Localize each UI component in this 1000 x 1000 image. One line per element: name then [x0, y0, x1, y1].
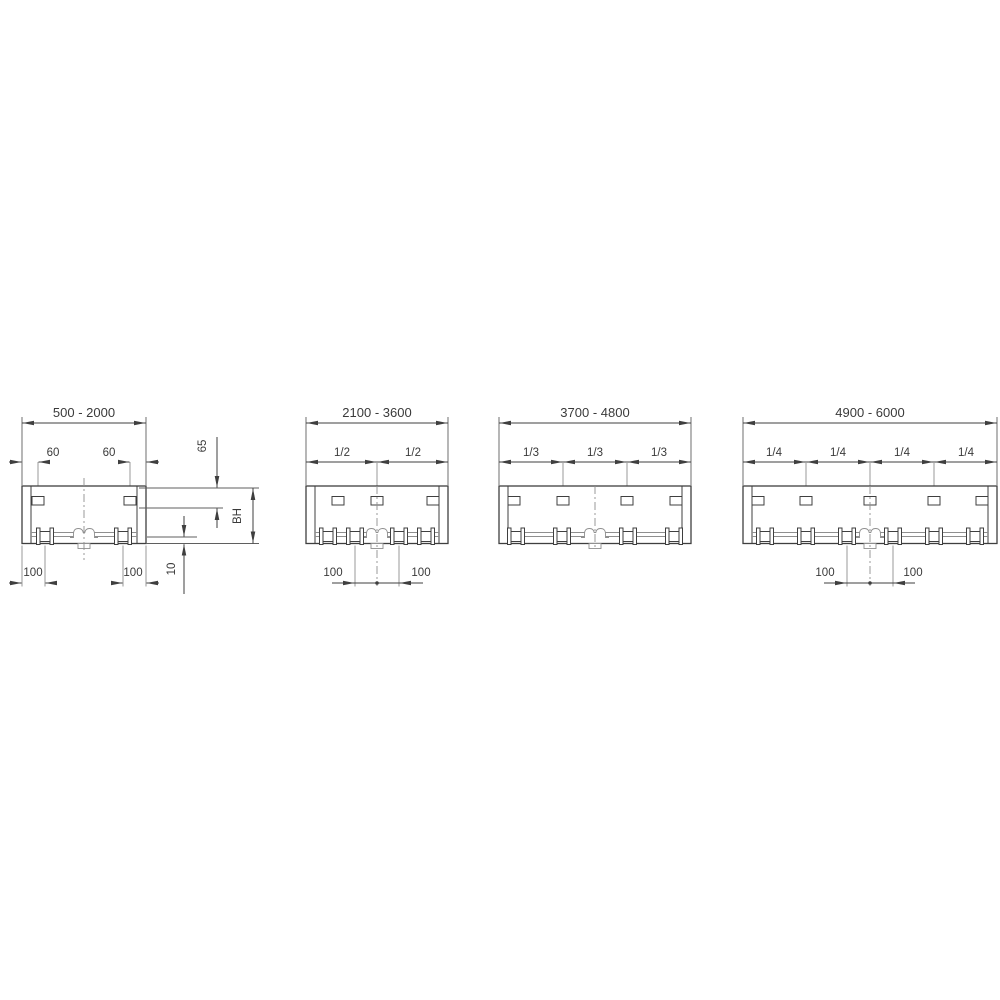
fraction-label: 1/4 [894, 447, 911, 459]
side-dimensions: 65 BH 10 [139, 437, 259, 594]
top-height-dimension: 65 [197, 437, 217, 528]
foot-offset-dimension-left: 100 [9, 546, 57, 587]
wall-bracket [332, 497, 344, 506]
fraction-label: 1/3 [523, 447, 539, 459]
wall-bracket [976, 497, 988, 506]
fraction-dimension: 1/2 1/2 [306, 447, 448, 488]
wall-bracket [508, 497, 520, 506]
panel-500-2000: 500 - 2000 60 60 [9, 405, 259, 594]
label-bh: BH [232, 508, 244, 524]
offset-label-100-left: 100 [23, 567, 42, 579]
foot-offset-dimension: 100 100 [815, 546, 922, 587]
offset-label-100-right: 100 [903, 567, 922, 579]
panel-range-label: 3700 - 4800 [560, 405, 629, 420]
label-10: 10 [166, 563, 178, 576]
wall-bracket [124, 497, 136, 506]
technical-drawing-page: 500 - 2000 60 60 [0, 0, 1000, 1000]
wall-bracket [32, 497, 44, 506]
wall-bracket [670, 497, 682, 506]
panel-range-label: 4900 - 6000 [835, 405, 904, 420]
wall-bracket [557, 497, 569, 506]
fraction-label: 1/4 [958, 447, 975, 459]
offset-label-100-left: 100 [815, 567, 834, 579]
radiator-bracket-spacing-diagram: 500 - 2000 60 60 [0, 0, 1000, 1000]
panel-range-label: 2100 - 3600 [342, 405, 411, 420]
offset-label-60-left: 60 [47, 447, 60, 459]
radiator-body [22, 478, 146, 560]
fraction-label: 1/4 [830, 447, 847, 459]
label-65: 65 [197, 440, 209, 453]
fraction-label: 1/3 [587, 447, 603, 459]
offset-label-60-right: 60 [103, 447, 116, 459]
bottom-gap-dimension: 10 [166, 516, 184, 594]
foot-offset-dimension-right: 100 [111, 546, 159, 587]
fraction-label: 1/2 [405, 447, 421, 459]
radiator-body [499, 486, 691, 550]
fraction-label: 1/4 [766, 447, 783, 459]
fraction-label: 1/2 [334, 447, 350, 459]
panel-2100-3600: 2100 - 3600 1/2 1/2 [306, 405, 448, 587]
wall-bracket [800, 497, 812, 506]
offset-label-100-left: 100 [323, 567, 342, 579]
offset-label-100-right: 100 [123, 567, 142, 579]
wall-bracket [621, 497, 633, 506]
wall-bracket [928, 497, 940, 506]
overall-width-dimension [22, 417, 146, 485]
panel-range-label: 500 - 2000 [53, 405, 115, 420]
fraction-label: 1/3 [651, 447, 667, 459]
panel-4900-6000: 4900 - 6000 1/4 1/4 1/4 1/4 [743, 405, 997, 587]
wall-bracket [752, 497, 764, 506]
wall-bracket [427, 497, 439, 506]
offset-label-100-right: 100 [411, 567, 430, 579]
panel-3700-4800: 3700 - 4800 1/3 1/3 1/3 [499, 405, 691, 550]
build-height-dimension: BH [232, 488, 253, 544]
radiator-body [743, 486, 997, 586]
